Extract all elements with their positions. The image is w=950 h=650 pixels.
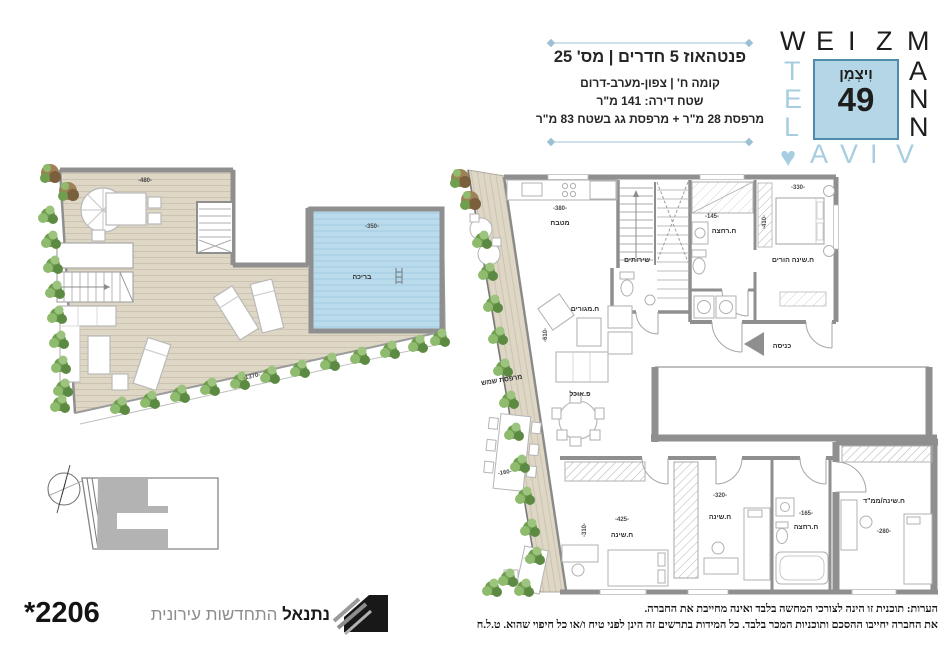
bedroom2-dim: -320- — [713, 493, 727, 499]
logo-letter: A — [909, 58, 927, 85]
roof-dim-top: -480- — [138, 178, 152, 184]
compass-icon — [48, 465, 82, 513]
bedroom1-dim: -425- — [615, 517, 629, 523]
master-bed-dim: -330- — [791, 185, 805, 191]
brand-bold: נתנאל — [282, 605, 330, 624]
disclaimer: הערות: תוכנית זו הינה לצורכי המחשה בלבד … — [430, 601, 938, 633]
master-bed-label: ח.שינה הורים — [772, 257, 814, 264]
logo-center-square: וִיצְמָן 49 — [813, 59, 899, 140]
coffee-table-roof — [88, 336, 110, 374]
entrance-label: כניסה — [773, 343, 792, 350]
pool-label: בריכה — [352, 274, 372, 281]
logo-letter: T — [784, 58, 801, 85]
weizmann-logo: W E I Z M T E L A N N ♥ A V I V וִיצְמָן… — [780, 28, 938, 168]
bedroom1-label: ח.שינה — [611, 532, 633, 539]
site-key — [48, 465, 218, 549]
logo-letter: N — [909, 114, 929, 141]
master-bed-dim-v: -410- — [762, 215, 768, 229]
header-floor-orientation: קומה ח' | צפון-מערב-דרום — [519, 74, 781, 92]
logo-letter: V — [896, 141, 914, 168]
bedroom1-dim-v: -310- — [582, 523, 588, 537]
logo-letter: I — [848, 28, 856, 55]
kitchen-fixtures — [507, 180, 617, 200]
brand-light: התחדשות עירונית — [151, 605, 278, 624]
master-bath-dim: -145- — [705, 214, 719, 220]
bath2-label: ח.רחצה — [794, 524, 819, 531]
living-label: ח.מגורים — [571, 306, 600, 313]
kitchen-dim: -380- — [553, 206, 567, 212]
bath2-dim: -165- — [799, 511, 813, 517]
wardrobe-divider — [674, 462, 698, 578]
pool-dim: -350- — [365, 224, 379, 230]
roof-terrace-plan: -480- -350- בריכה -1370- — [38, 164, 450, 424]
logo-letter: N — [909, 86, 929, 113]
bedroom2-label: ח.שינה — [709, 514, 731, 521]
logo-letter: A — [810, 141, 828, 168]
kitchen-label: מטבח — [550, 220, 569, 227]
page-title: פנטהאוז 5 חדרים | מס' 25 — [519, 48, 781, 67]
header-rule-top — [546, 39, 754, 47]
logo-letter: E — [784, 86, 802, 113]
header-rule-bottom — [546, 138, 754, 146]
master-bath-label: ח.רחצה — [712, 228, 737, 235]
mamad-label: ח.שינה/ממ"ד — [863, 498, 905, 505]
dining-label: פ.אוכל — [569, 390, 591, 398]
netanel-logo-icon — [334, 595, 388, 634]
roof-skylight — [57, 243, 133, 268]
roof-stairwell — [197, 202, 233, 253]
mamad-dim: -280- — [877, 529, 891, 535]
roof-stairs — [57, 272, 133, 302]
header-balcony-area: מרפסת 28 מ"ר + מרפסת גג בשטח 83 מ"ר — [519, 110, 781, 128]
logo-letter: I — [870, 141, 878, 168]
header-apartment-area: שטח דירה: 141 מ"ר — [519, 92, 781, 110]
logo-project-number: 49 — [815, 83, 897, 117]
phone-number: *2206 — [24, 597, 100, 630]
wc-label: שירותים — [624, 257, 650, 264]
key-plan — [82, 478, 218, 549]
heart-icon: ♥ — [780, 144, 796, 171]
logo-letter: W — [780, 28, 805, 55]
outdoor-table — [106, 193, 146, 225]
brand-name: נתנאל התחדשות עירונית — [128, 605, 330, 625]
logo-letter: L — [784, 114, 799, 141]
logo-letter: E — [816, 28, 834, 55]
disclaimer-line1: הערות: תוכנית זו הינה לצורכי המחשה בלבד … — [430, 601, 938, 617]
living-dim: -610- — [543, 328, 549, 342]
logo-letter: V — [840, 141, 858, 168]
master-bench — [780, 292, 826, 306]
logo-letter: M — [907, 28, 930, 55]
header-block: פנטהאוז 5 חדרים | מס' 25 קומה ח' | צפון-… — [519, 48, 781, 128]
disclaimer-line2: את החברה יחייבו ההסכם ותוכניות המכר בלבד… — [430, 617, 938, 633]
open-void — [655, 367, 937, 442]
apartment-plan: -380- מטבח ח.מגורים -610- פ.אוכל שירותים… — [450, 169, 938, 597]
logo-letter: Z — [876, 28, 893, 55]
floorplan-sheet: -480- -350- בריכה -1370- — [0, 0, 950, 650]
